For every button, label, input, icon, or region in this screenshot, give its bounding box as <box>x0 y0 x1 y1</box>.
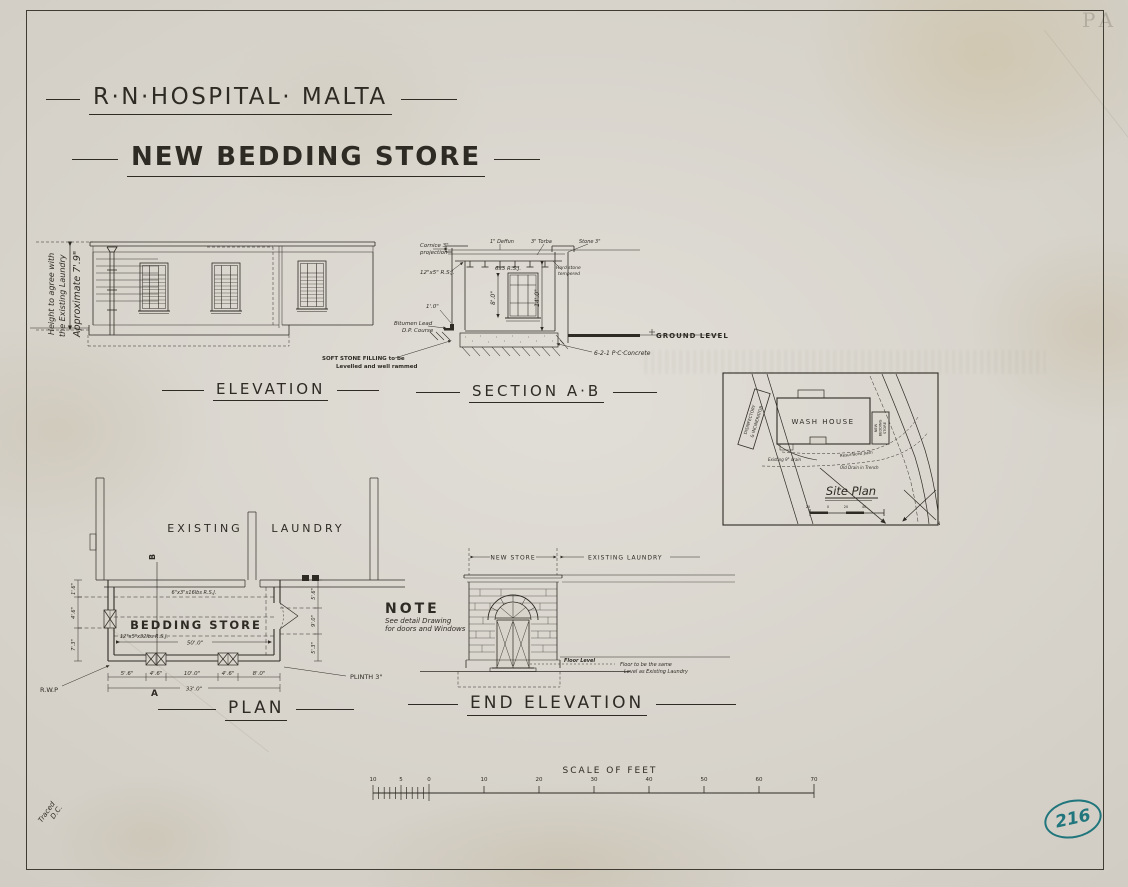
plan-left-dim: 1'.6" <box>71 583 77 595</box>
section-marker-b: B <box>148 554 157 560</box>
section-cornice-note-2: projection <box>419 250 448 256</box>
plan-window-bottom-2 <box>218 653 238 665</box>
laundry-label: LAUNDRY <box>271 522 344 535</box>
plan-right-dim: 9'.0" <box>311 615 317 627</box>
plan-bottom-dim: 4'.6" <box>150 671 163 677</box>
label-dash <box>296 709 354 711</box>
section-cornice-note-1: Cornice 3" <box>420 243 449 249</box>
section-label-row: SECTION A·B <box>416 382 657 403</box>
site-scale-tick: 40 <box>862 505 866 509</box>
plan-door <box>280 603 298 629</box>
downpipe <box>107 247 117 335</box>
note-title: NOTE <box>385 601 495 617</box>
scale-title: SCALE OF FEET <box>563 766 658 776</box>
section-window-height: 8'.0" <box>490 291 497 305</box>
north-label: N <box>937 521 940 527</box>
subtitle-dash-left <box>72 159 118 161</box>
site-scale-tick: 20 <box>806 505 810 509</box>
plan-left-dim: 7'.3" <box>71 639 77 651</box>
scale-left-label: 0 <box>427 777 431 783</box>
scale-major-label: 10 <box>481 777 488 783</box>
concrete-dots <box>465 336 553 342</box>
end-elevation-label: END ELEVATION <box>467 693 647 716</box>
old-drain-label: Old Drain in Trench <box>840 465 879 470</box>
section-deffun-note: 1" Deffun <box>490 239 514 245</box>
existing-label: EXISTING <box>167 522 242 535</box>
sheet-subtitle: NEW BEDDING STORE <box>127 142 485 177</box>
plan-window-left <box>104 610 116 628</box>
floor-note-2: Level as Existing Laundry <box>624 669 689 675</box>
plan-window-bottom-1 <box>146 653 166 665</box>
new-store-label: NEW STORE <box>490 555 535 562</box>
sheet-border <box>26 10 1104 870</box>
plan-label-row: PLAN <box>158 698 354 721</box>
rwp-label: R.W.P <box>40 686 58 694</box>
section-wall-height: 14'.0" <box>534 289 541 307</box>
label-dash <box>416 392 460 394</box>
site-store-label-1: NEW <box>874 423 878 432</box>
title-dash-left <box>46 99 80 101</box>
wash-house-label: WASH HOUSE <box>791 418 854 426</box>
scale-left-label: 10 <box>370 777 377 783</box>
scale-major-label: 30 <box>591 777 598 783</box>
section-concrete-note: 6-2-1 P·C·Concrete <box>594 350 651 357</box>
plan-rsj-top-note: 6"x3"x16lbs R.S.J. <box>172 590 217 596</box>
site-plan-label: Site Plan <box>826 484 876 498</box>
section-joist-note: 6x3 R.S.J. <box>495 266 521 272</box>
section-hardstone-note-1: Hard stone <box>556 265 581 271</box>
floor-level-label: Floor Level <box>564 658 595 664</box>
scale-major-label: 20 <box>536 777 543 783</box>
title-row: R·N·HOSPITAL· MALTA <box>46 84 457 115</box>
double-door <box>490 620 536 672</box>
section-bitumen-note-2: D.P. Course <box>402 328 434 334</box>
subtitle-row: NEW BEDDING STORE <box>72 142 540 177</box>
label-dash <box>158 709 216 711</box>
scale-of-feet: SCALE OF FEET 10 5 0 10 20 30 40 50 60 7… <box>360 760 835 815</box>
section-filling-note-1: SOFT STONE FILLING to be <box>322 356 405 362</box>
resurfaced-path-label: Resurfaced path <box>840 450 874 458</box>
section-label: SECTION A·B <box>469 382 604 403</box>
plan-bottom-dim: 8'.0" <box>253 671 266 677</box>
plan-bottom-dim: 4'.6" <box>222 671 235 677</box>
scale-major-label: 70 <box>811 777 818 783</box>
subtitle-dash-right <box>494 159 540 161</box>
plan-drawing: EXISTING LAUNDRY BEDDING STORE 6"x3"x16l… <box>20 470 420 720</box>
section-drawing: Cornice 3" projection 12"x5" R.S.J. 1" D… <box>300 228 745 406</box>
earth-hatch <box>430 332 568 356</box>
end-elevation-label-row: END ELEVATION <box>408 693 736 716</box>
existing-drain-label: Existing 9" drain <box>768 457 802 462</box>
plinth-label: PLINTH 3" <box>350 673 382 681</box>
section-filling-note-2: Levelled and well rammed <box>336 364 417 370</box>
plan-number: 216 <box>1054 806 1093 833</box>
plan-right-dim: 5'.6" <box>311 588 317 600</box>
site-store-label-2: BEDDING <box>879 419 883 436</box>
site-scale-tick: 20 <box>844 505 848 509</box>
scale-left-label: 5 <box>399 777 403 783</box>
plan-label: PLAN <box>225 698 287 721</box>
plan-width-dim: 50'.0" <box>187 641 203 647</box>
scale-major-label: 50 <box>701 777 708 783</box>
scale-major-label: 40 <box>646 777 653 783</box>
floor-note-1: Floor to be the same <box>620 662 672 668</box>
bedding-store-label: BEDDING STORE <box>130 618 262 632</box>
label-dash <box>613 392 657 394</box>
label-dash <box>162 390 204 392</box>
plan-bottom-dim: 10'.0" <box>184 671 200 677</box>
title-dash-right <box>401 99 457 101</box>
note-line-1: See detail Drawing <box>385 617 495 625</box>
drawing-sheet: PA R·N·HOSPITAL· MALTA NEW BEDDING STORE… <box>0 0 1128 887</box>
plan-left-dim: 4'.6" <box>71 607 77 619</box>
site-store-label-3: STORE <box>883 421 887 434</box>
section-main-rsj-note: 12"x5" R.S.J. <box>420 270 455 276</box>
site-plan-drawing: WASH HOUSE NEW BEDDING STORE DISINFECTOR… <box>722 372 940 527</box>
ground-level-label: GROUND LEVEL <box>656 332 729 340</box>
corner-stamp: PA <box>1082 8 1118 32</box>
plan-total-dim: 33'.0" <box>186 687 202 693</box>
label-dash <box>656 704 736 706</box>
major-ticks <box>484 784 814 798</box>
site-scale-tick: 0 <box>827 505 829 509</box>
section-hardstone-note-2: tempered <box>558 271 580 277</box>
section-torba-note: 3" Torba <box>531 239 552 245</box>
sheet-title: R·N·HOSPITAL· MALTA <box>89 84 392 115</box>
existing-laundry-label: EXISTING LAUNDRY <box>588 555 663 562</box>
north-compass <box>904 490 936 520</box>
plan-right-dim: 5'.3" <box>311 642 317 654</box>
plan-rsj-mid-note: 12"x5"x32lbs R.S.J. <box>120 634 168 640</box>
scale-major-label: 60 <box>756 777 763 783</box>
plan-bottom-dim: 5'.6" <box>121 671 134 677</box>
section-base-dim: 1'.0" <box>426 304 439 310</box>
label-dash <box>408 704 458 706</box>
section-bitumen-note-1: Bitumen Lead <box>394 321 433 327</box>
section-marker-a: A <box>151 689 158 699</box>
note-line-2: for doors and Windows <box>385 625 495 633</box>
note-block: NOTE See detail Drawing for doors and Wi… <box>385 601 495 633</box>
section-stone-note: Stone 3" <box>579 239 601 245</box>
